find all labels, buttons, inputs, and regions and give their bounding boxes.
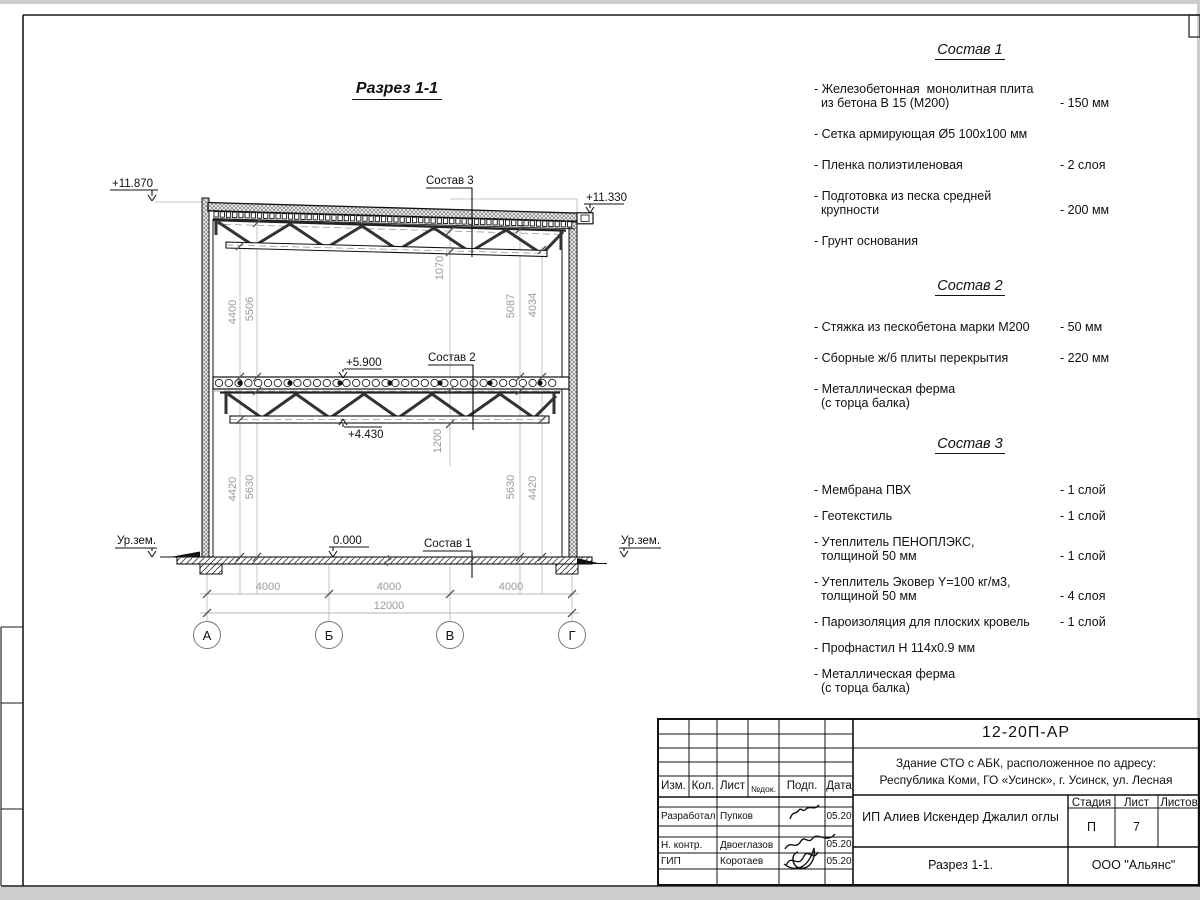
composition-item: - Геотекстиль- 1 слой [814, 509, 1144, 523]
elevation-floor: +5.900 [346, 357, 382, 369]
axis-label-g: Г [568, 628, 575, 643]
col-izm: Изм. [658, 780, 689, 792]
elevation-truss-bottom: +4.430 [348, 429, 384, 441]
composition-item-value: - 220 мм [1060, 351, 1140, 365]
row-date-3: 05.20 [825, 856, 853, 867]
col-podp: Подп. [779, 780, 825, 792]
sheet-title: Разрез 1-1. [855, 858, 1066, 872]
row-name-1: Пупков [720, 811, 778, 822]
composition-item-label: - Сборные ж/б плиты перекрытия [814, 351, 1060, 365]
ground-level-label-left: Ур.зем. [117, 535, 156, 547]
dim-right-inner-bottom: 5630 [505, 475, 517, 499]
row-date-1: 05.20 [825, 811, 853, 822]
composition-3-list: - Мембрана ПВХ- 1 слой- Геотекстиль- 1 с… [814, 483, 1144, 707]
composition-item: - Металлическая ферма (с торца балка) [814, 382, 1144, 410]
sheets-label: Листов [1158, 797, 1200, 809]
composition-2-list: - Стяжка из пескобетона марки М200- 50 м… [814, 320, 1144, 427]
col-list: Лист [717, 780, 748, 792]
dim-left-outer-top: 5506 [244, 297, 256, 321]
label-sostav2: Состав 2 [428, 352, 476, 364]
composition-item-value: - 2 слоя [1060, 158, 1140, 172]
composition-item: - Стяжка из пескобетона марки М200- 50 м… [814, 320, 1144, 334]
project-description: Здание СТО с АБК, расположенное по адрес… [855, 755, 1197, 789]
frame-left-boxes [1, 627, 23, 886]
elevation-roof-right: +11.330 [586, 192, 627, 204]
project-line1: Здание СТО с АБК, расположенное по адрес… [855, 755, 1197, 772]
composition-item: - Металлическая ферма (с торца балка) [814, 667, 1144, 695]
ground-slab [160, 552, 607, 575]
floor-slab [213, 377, 569, 391]
label-sostav3: Состав 3 [426, 175, 474, 187]
composition-item: - Утеплитель Эковер Y=100 кг/м3, толщино… [814, 575, 1144, 603]
axis-label-b: Б [325, 628, 334, 643]
composition-item-value: - 200 мм [1060, 203, 1140, 217]
dim-right-outer-top: 4034 [527, 293, 539, 317]
company-name: ООО "Альянс" [1070, 858, 1197, 872]
client-name: ИП Алиев Искендер Джалил оглы [855, 810, 1066, 824]
lower-truss [220, 393, 560, 424]
composition-item-value: - 1 слой [1060, 615, 1140, 629]
elevation-marks [110, 190, 661, 557]
foundation-left [200, 564, 222, 574]
row-role-2: Н. контр. [661, 840, 716, 851]
composition-item: - Железобетонная монолитная плита из бет… [814, 82, 1144, 110]
elevation-zero: 0.000 [333, 535, 362, 547]
composition-item-value: - 50 мм [1060, 320, 1140, 334]
composition-item-label: - Утеплитель Эковер Y=100 кг/м3, толщино… [814, 575, 1060, 603]
foundation-right [556, 564, 578, 574]
drawing-labels: Состав 3 Состав 2 Состав 1 +11.870 +11.3… [112, 175, 660, 550]
dim-total: 12000 [374, 600, 405, 612]
sheet-label: Лист [1115, 797, 1158, 809]
composition-1-header: Состав 1 [814, 42, 1126, 58]
composition-item-label: - Геотекстиль [814, 509, 1060, 523]
signature-gip [784, 848, 818, 868]
composition-item-label: - Сетка армирующая Ø5 100х100 мм [814, 127, 1060, 141]
left-wall [202, 198, 213, 558]
dim-span-3: 4000 [499, 581, 523, 593]
composition-item-label: - Пленка полиэтиленовая [814, 158, 1060, 172]
elevation-roof-left: +11.870 [112, 178, 153, 190]
hollow-core-circles [215, 379, 556, 386]
doc-number: 12-20П-АР [855, 724, 1197, 742]
dim-right-inner-top: 5087 [505, 294, 517, 318]
section-view: А Б В Г Состав 3 Состав 2 Состав 1 +11.8… [110, 175, 661, 649]
composition-item: - Грунт основания [814, 234, 1144, 248]
dim-span-1: 4000 [256, 581, 280, 593]
col-ndoc: №док. [748, 784, 779, 794]
composition-1-list: - Железобетонная монолитная плита из бет… [814, 82, 1144, 265]
dim-floor-truss-height: 1200 [432, 429, 444, 453]
composition-item-label: - Металлическая ферма (с торца балка) [814, 667, 1060, 695]
composition-item: - Профнастил Н 114х0.9 мм [814, 641, 1144, 655]
composition-item: - Утеплитель ПЕНОПЛЭКС, толщиной 50 мм- … [814, 535, 1144, 563]
composition-item: - Сборные ж/б плиты перекрытия- 220 мм [814, 351, 1144, 365]
axis-label-a: А [203, 628, 212, 643]
composition-item-value: - 1 слой [1060, 509, 1140, 523]
row-name-3: Коротаев [720, 856, 780, 867]
row-role-3: ГИП [661, 856, 716, 867]
row-date-2: 05.20 [825, 839, 853, 850]
ground-level-label-right: Ур.зем. [621, 535, 660, 547]
dim-left-inner-bottom: 4420 [227, 477, 239, 501]
composition-item: - Мембрана ПВХ- 1 слой [814, 483, 1144, 497]
composition-item: - Подготовка из песка средней крупности-… [814, 189, 1144, 217]
dim-roof-truss-height: 1070 [434, 256, 446, 280]
composition-item-label: - Пароизоляция для плоских кровель [814, 615, 1060, 629]
row-role-1: Разработал [661, 811, 716, 822]
composition-item-value: - 150 мм [1060, 96, 1140, 110]
axis-bubbles: А Б В Г [194, 622, 586, 649]
col-data: Дата [825, 780, 853, 792]
stage-label: Стадия [1068, 797, 1115, 809]
sheet-value: 7 [1115, 820, 1158, 834]
composition-item-value: - 4 слоя [1060, 589, 1140, 603]
dim-span-2: 4000 [377, 581, 401, 593]
composition-3-header: Состав 3 [814, 436, 1126, 452]
composition-item-label: - Подготовка из песка средней крупности [814, 189, 1060, 217]
frame-corner-box [1189, 15, 1200, 37]
row-name-2: Двоеглазов [720, 840, 780, 851]
composition-item-value: - 1 слой [1060, 483, 1140, 497]
composition-item: - Сетка армирующая Ø5 100х100 мм [814, 127, 1144, 141]
composition-item-label: - Грунт основания [814, 234, 1060, 248]
ground-wedge-left [170, 552, 200, 558]
composition-item-label: - Мембрана ПВХ [814, 483, 1060, 497]
project-line2: Республика Коми, ГО «Усинск», г. Усинск,… [855, 772, 1197, 789]
composition-item-label: - Железобетонная монолитная плита из бет… [814, 82, 1060, 110]
composition-item: - Пароизоляция для плоских кровель- 1 сл… [814, 615, 1144, 629]
composition-item-label: - Утеплитель ПЕНОПЛЭКС, толщиной 50 мм [814, 535, 1060, 563]
composition-item-label: - Стяжка из пескобетона марки М200 [814, 320, 1060, 334]
dim-right-outer-bottom: 4420 [527, 476, 539, 500]
dim-left-inner-top: 4400 [227, 300, 239, 324]
stage-value: П [1068, 820, 1115, 834]
composition-item: - Пленка полиэтиленовая- 2 слоя [814, 158, 1144, 172]
drawing-title: Разрез 1-1 [327, 80, 467, 98]
composition-2-header: Состав 2 [814, 278, 1126, 294]
axis-label-v: В [446, 628, 455, 643]
label-sostav1: Состав 1 [424, 538, 472, 550]
composition-item-value: - 1 слой [1060, 549, 1140, 563]
dim-left-outer-bottom: 5630 [244, 475, 256, 499]
col-kol: Кол. [689, 780, 717, 792]
composition-item-label: - Металлическая ферма (с торца балка) [814, 382, 1060, 410]
composition-item-label: - Профнастил Н 114х0.9 мм [814, 641, 1060, 655]
